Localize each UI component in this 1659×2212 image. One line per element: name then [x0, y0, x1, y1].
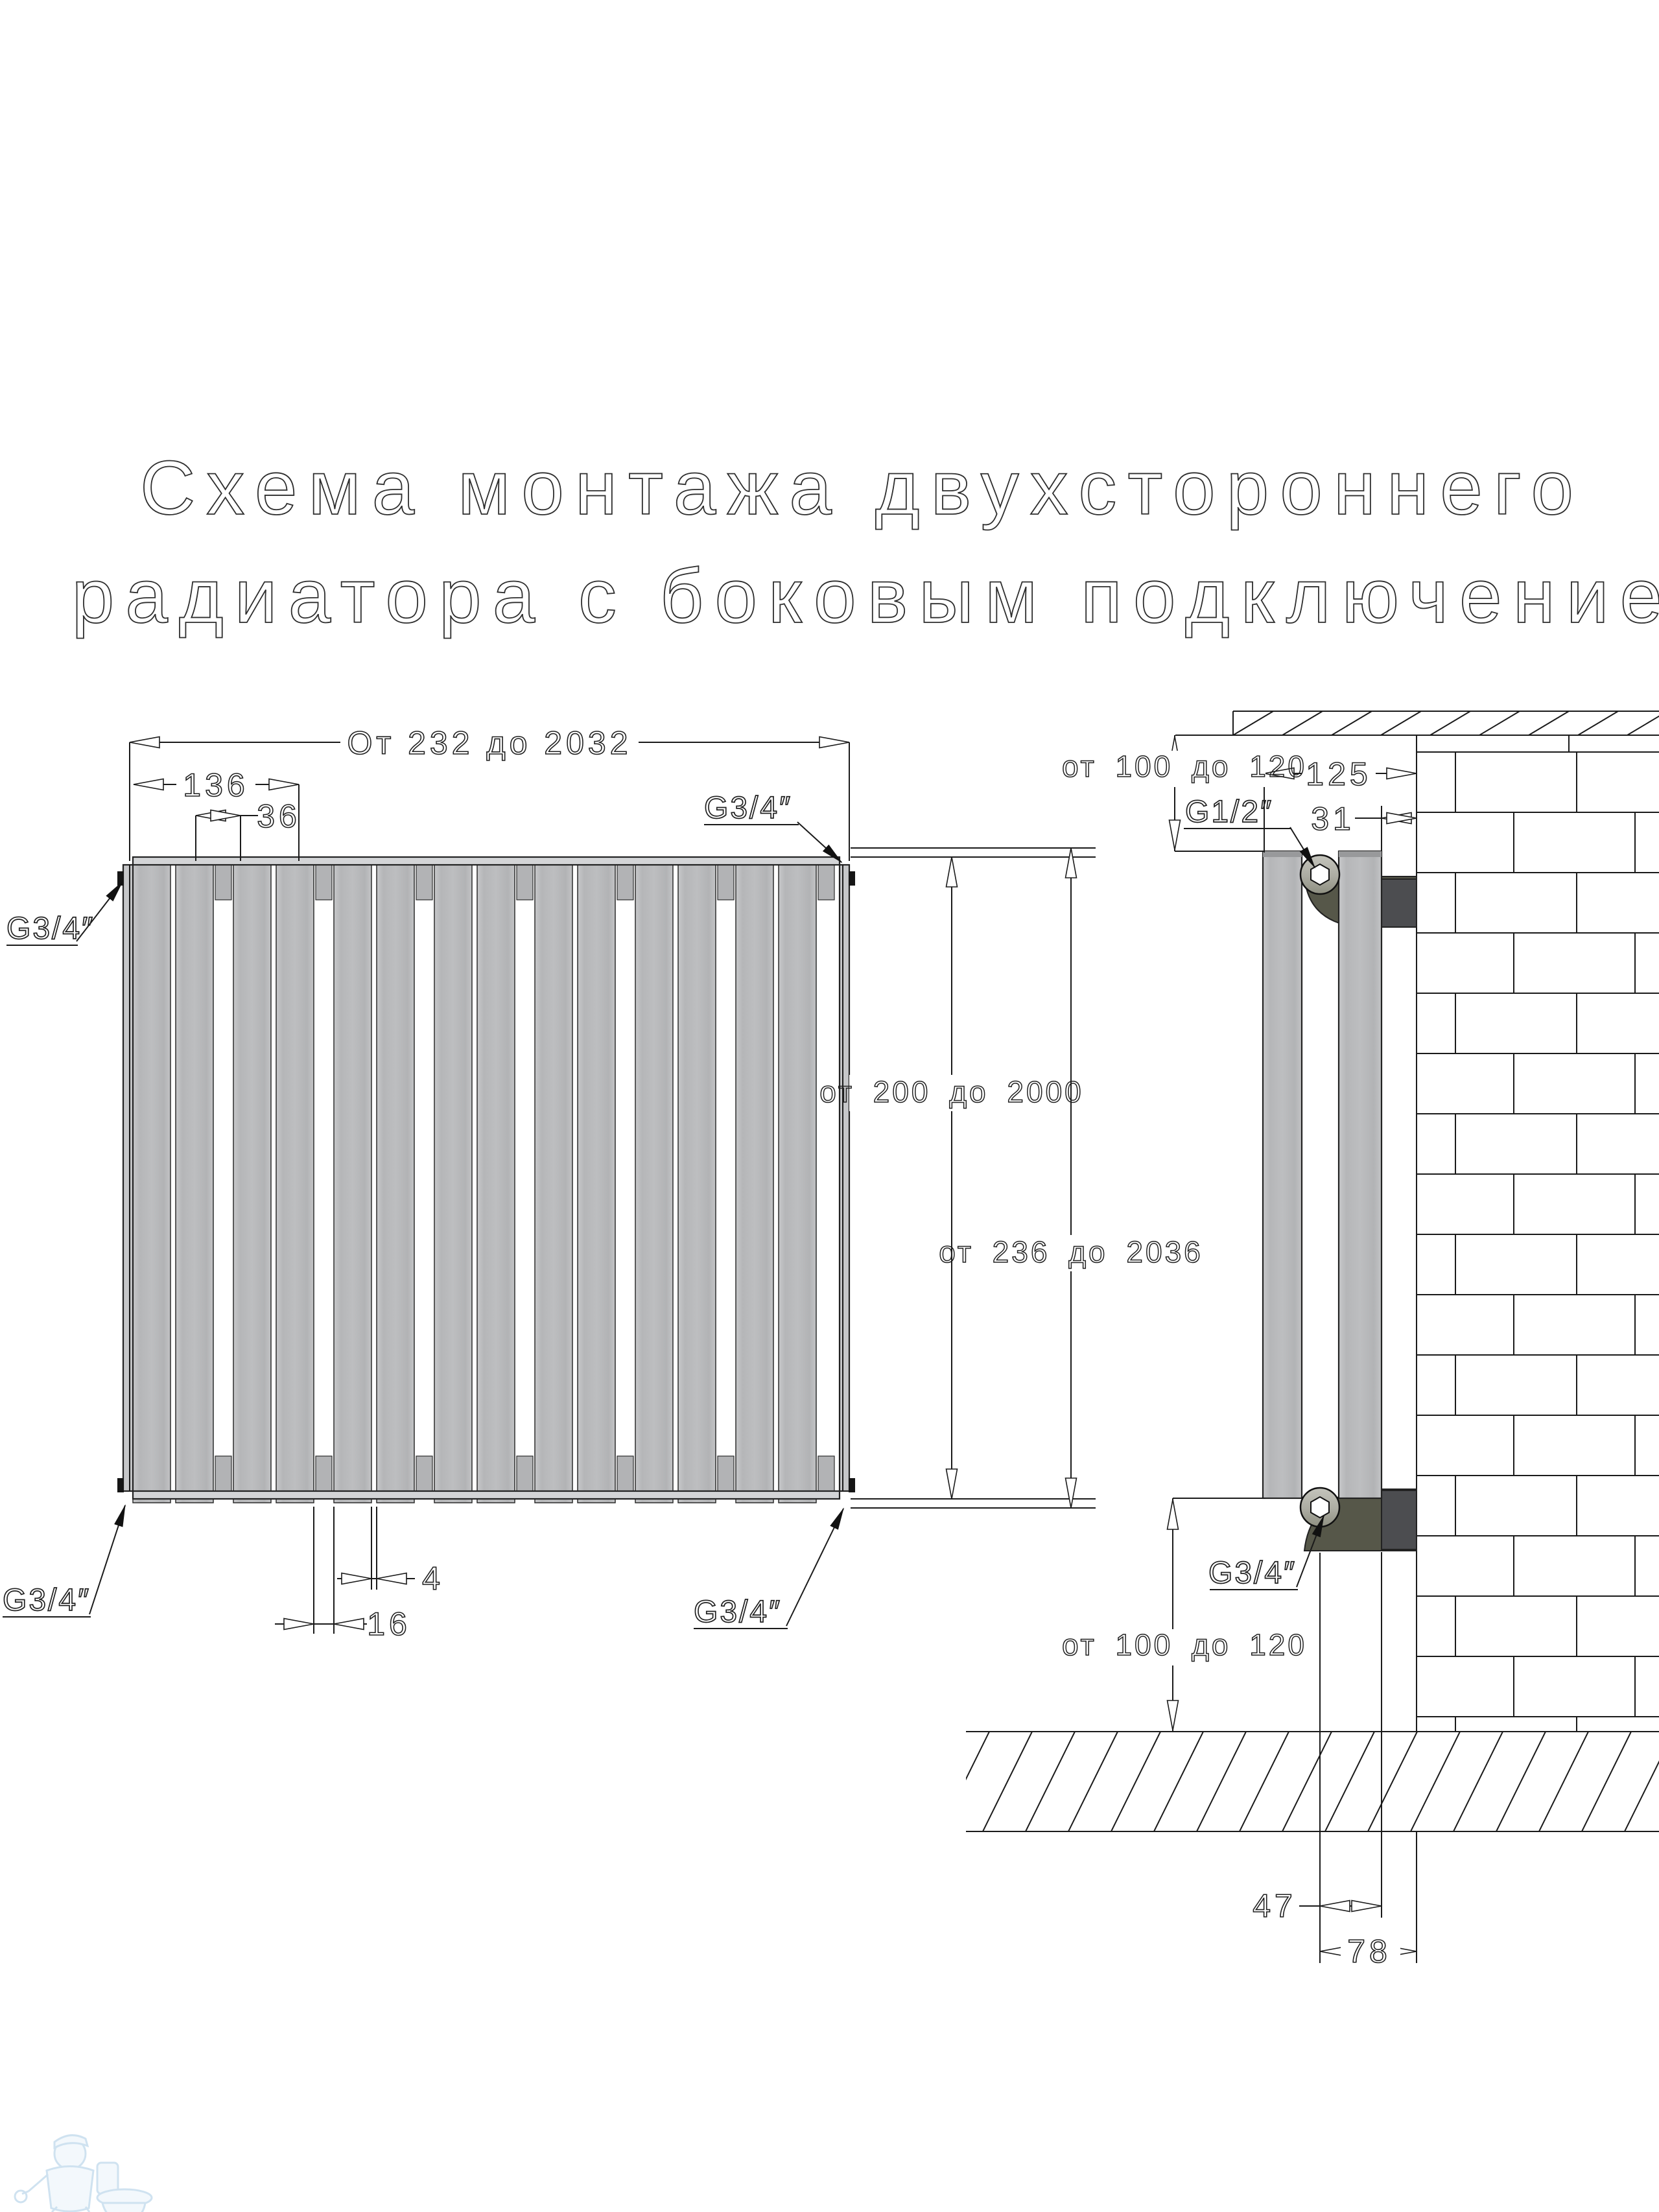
dim-depth-125: 125	[1306, 756, 1371, 792]
radiator-mounting-diagram: Схема монтажа двухстороннего радиатора с…	[0, 0, 1659, 2212]
conn-label-top-right: G3/4″	[704, 791, 792, 825]
bottom-header-rail	[133, 1491, 840, 1499]
drawing-page: Схема монтажа двухстороннего радиатора с…	[0, 0, 1659, 2212]
dim-16: 16	[367, 1606, 411, 1642]
dim-height-outer: от 236 до 2036	[939, 1235, 1203, 1269]
bottom-valve-hex-nut	[1311, 1497, 1329, 1518]
left-end-cap	[123, 865, 133, 1491]
dim-standoff-31: 31	[1311, 801, 1355, 837]
dim-136: 136	[183, 767, 248, 803]
conn-label-side-g34: G3/4″	[1208, 1556, 1297, 1590]
top-header-rail	[133, 857, 840, 865]
dim-47: 47	[1253, 1888, 1297, 1924]
conn-label-g12: G1/2″	[1185, 795, 1273, 829]
dim-overall-width: От 232 до 2032	[347, 725, 631, 761]
dim-36: 36	[257, 798, 301, 834]
top-valve-hex-nut	[1311, 864, 1329, 885]
dim-height-inner: от 200 до 2000	[819, 1075, 1084, 1109]
dim-bottom-offset: от 100 до 120	[1062, 1628, 1307, 1662]
title-line-2: радиатора с боковым подключением	[72, 554, 1659, 639]
conn-label-top-left: G3/4″	[6, 912, 95, 946]
dim-78: 78	[1347, 1933, 1391, 1970]
conn-label-bottom-left: G3/4″	[3, 1583, 91, 1618]
title-line-1: Схема монтажа двухстороннего	[140, 445, 1584, 531]
dim-4: 4	[422, 1560, 444, 1597]
conn-label-bottom-right: G3/4″	[694, 1595, 782, 1629]
dim-top-offset: от 100 до 120	[1062, 749, 1307, 783]
right-end-cap	[840, 865, 849, 1491]
